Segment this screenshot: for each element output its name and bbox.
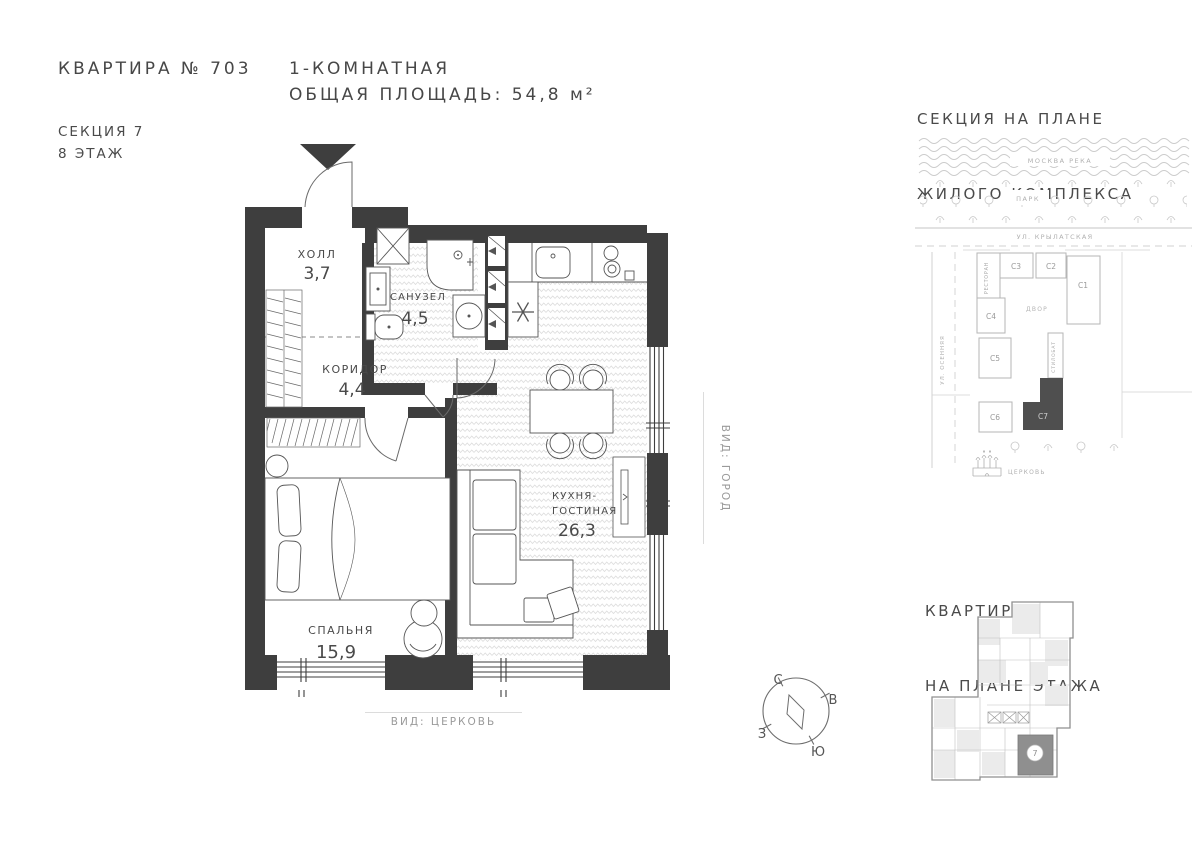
bed-icon [265,478,450,600]
hall-wardrobe [266,290,302,407]
vent-shaft [488,236,505,340]
complex-map: МОСКВА РЕКА ПАРК УЛ. КРЫЛАТСКАЯ УЛ. ОСЕН… [915,120,1195,492]
compass-west: З [758,727,766,742]
apartment-type: 1-КОМНАТНАЯ [289,56,596,82]
stylobate-label: СТИЛОБАТ [1051,341,1057,373]
label-c7: С7 [1038,412,1048,421]
kitchen-cabinet [508,282,538,337]
street-top-label: УЛ. КРЫЛАТСКАЯ [1017,233,1094,241]
park-trees [920,177,1187,225]
room-label-corridor: КОРИДОР [322,363,388,376]
room-area-bathroom: 4,5 [401,309,428,329]
compass-north: С [773,673,782,688]
view-church-label: ВИД: ЦЕРКОВЬ [347,716,540,728]
bedside-table-icon [266,455,288,477]
room-area-kitchen: 26,3 [558,521,596,541]
kitchen-sink-icon [536,247,570,278]
room-label-kitchen2: ГОСТИНАЯ [552,506,617,517]
apartment-area: ОБЩАЯ ПЛОЩАДЬ: 54,8 м² [289,82,596,108]
room-label-bedroom: СПАЛЬНЯ [308,624,374,637]
room-label-kitchen1: КУХНЯ- [552,491,597,502]
bathroom-sink-icon [453,295,485,337]
washing-machine-icon [377,228,409,264]
room-label-bathroom: САНУЗЕЛ [390,292,446,303]
building-c7-highlighted [1023,378,1063,430]
label-c4: С4 [986,312,996,321]
apartment-marker-number: 7 [1032,749,1037,758]
shower-icon [427,240,473,290]
floor-number: 8 ЭТАЖ [58,143,144,165]
corridor-closet [267,418,360,447]
radiator-icon [613,457,645,537]
street-left-label: УЛ. ОСЕННЯЯ [940,335,946,385]
apartment-plan-page: КВАРТИРА № 703 1-КОМНАТНАЯ ОБЩАЯ ПЛОЩАДЬ… [0,0,1200,851]
courtyard-label: ДВОР [1026,306,1048,313]
view-city-label: ВИД: ГОРОД [719,396,731,541]
view-church-line [365,712,522,713]
view-city-line [703,392,704,544]
label-c3: С3 [1011,262,1021,271]
label-c6: С6 [990,413,1000,422]
river-label: МОСКВА РЕКА [1028,157,1092,165]
label-c2: С2 [1046,262,1056,271]
label-c1: С1 [1078,281,1088,290]
compass-south: Ю [811,745,825,760]
dining-table [530,390,613,433]
bottom-trees [1011,442,1118,453]
church-icon [973,450,1001,476]
park-label: ПАРК [1016,195,1040,203]
thumbnail-core [988,712,1029,723]
room-area-bedroom: 15,9 [316,642,356,663]
entry-door [300,144,356,207]
room-area-hall: 3,7 [303,264,330,284]
building-c1 [1067,256,1100,324]
section-number: СЕКЦИЯ 7 [58,121,144,143]
entry-arrow-icon [300,144,356,170]
restaurant-label: РЕСТОРАН [984,262,990,294]
toilet-icon [366,314,403,340]
pouf-icon [404,600,442,658]
floor-map-thumbnail: 7 [930,600,1180,850]
church-label: ЦЕРКОВЬ [1008,469,1046,476]
room-area-corridor: 4,4 [338,380,365,400]
compass-east: В [829,693,838,708]
main-floor-plan: ХОЛЛ 3,7 САНУЗЕЛ 4,5 КОРИДОР 4,4 КУХНЯ- … [240,140,680,700]
compass: С В З Ю [752,668,844,760]
washbasin-icon [366,267,390,311]
apartment-title: КВАРТИРА № 703 [58,56,252,82]
room-label-hall: ХОЛЛ [298,248,337,261]
label-c5: С5 [990,354,1000,363]
